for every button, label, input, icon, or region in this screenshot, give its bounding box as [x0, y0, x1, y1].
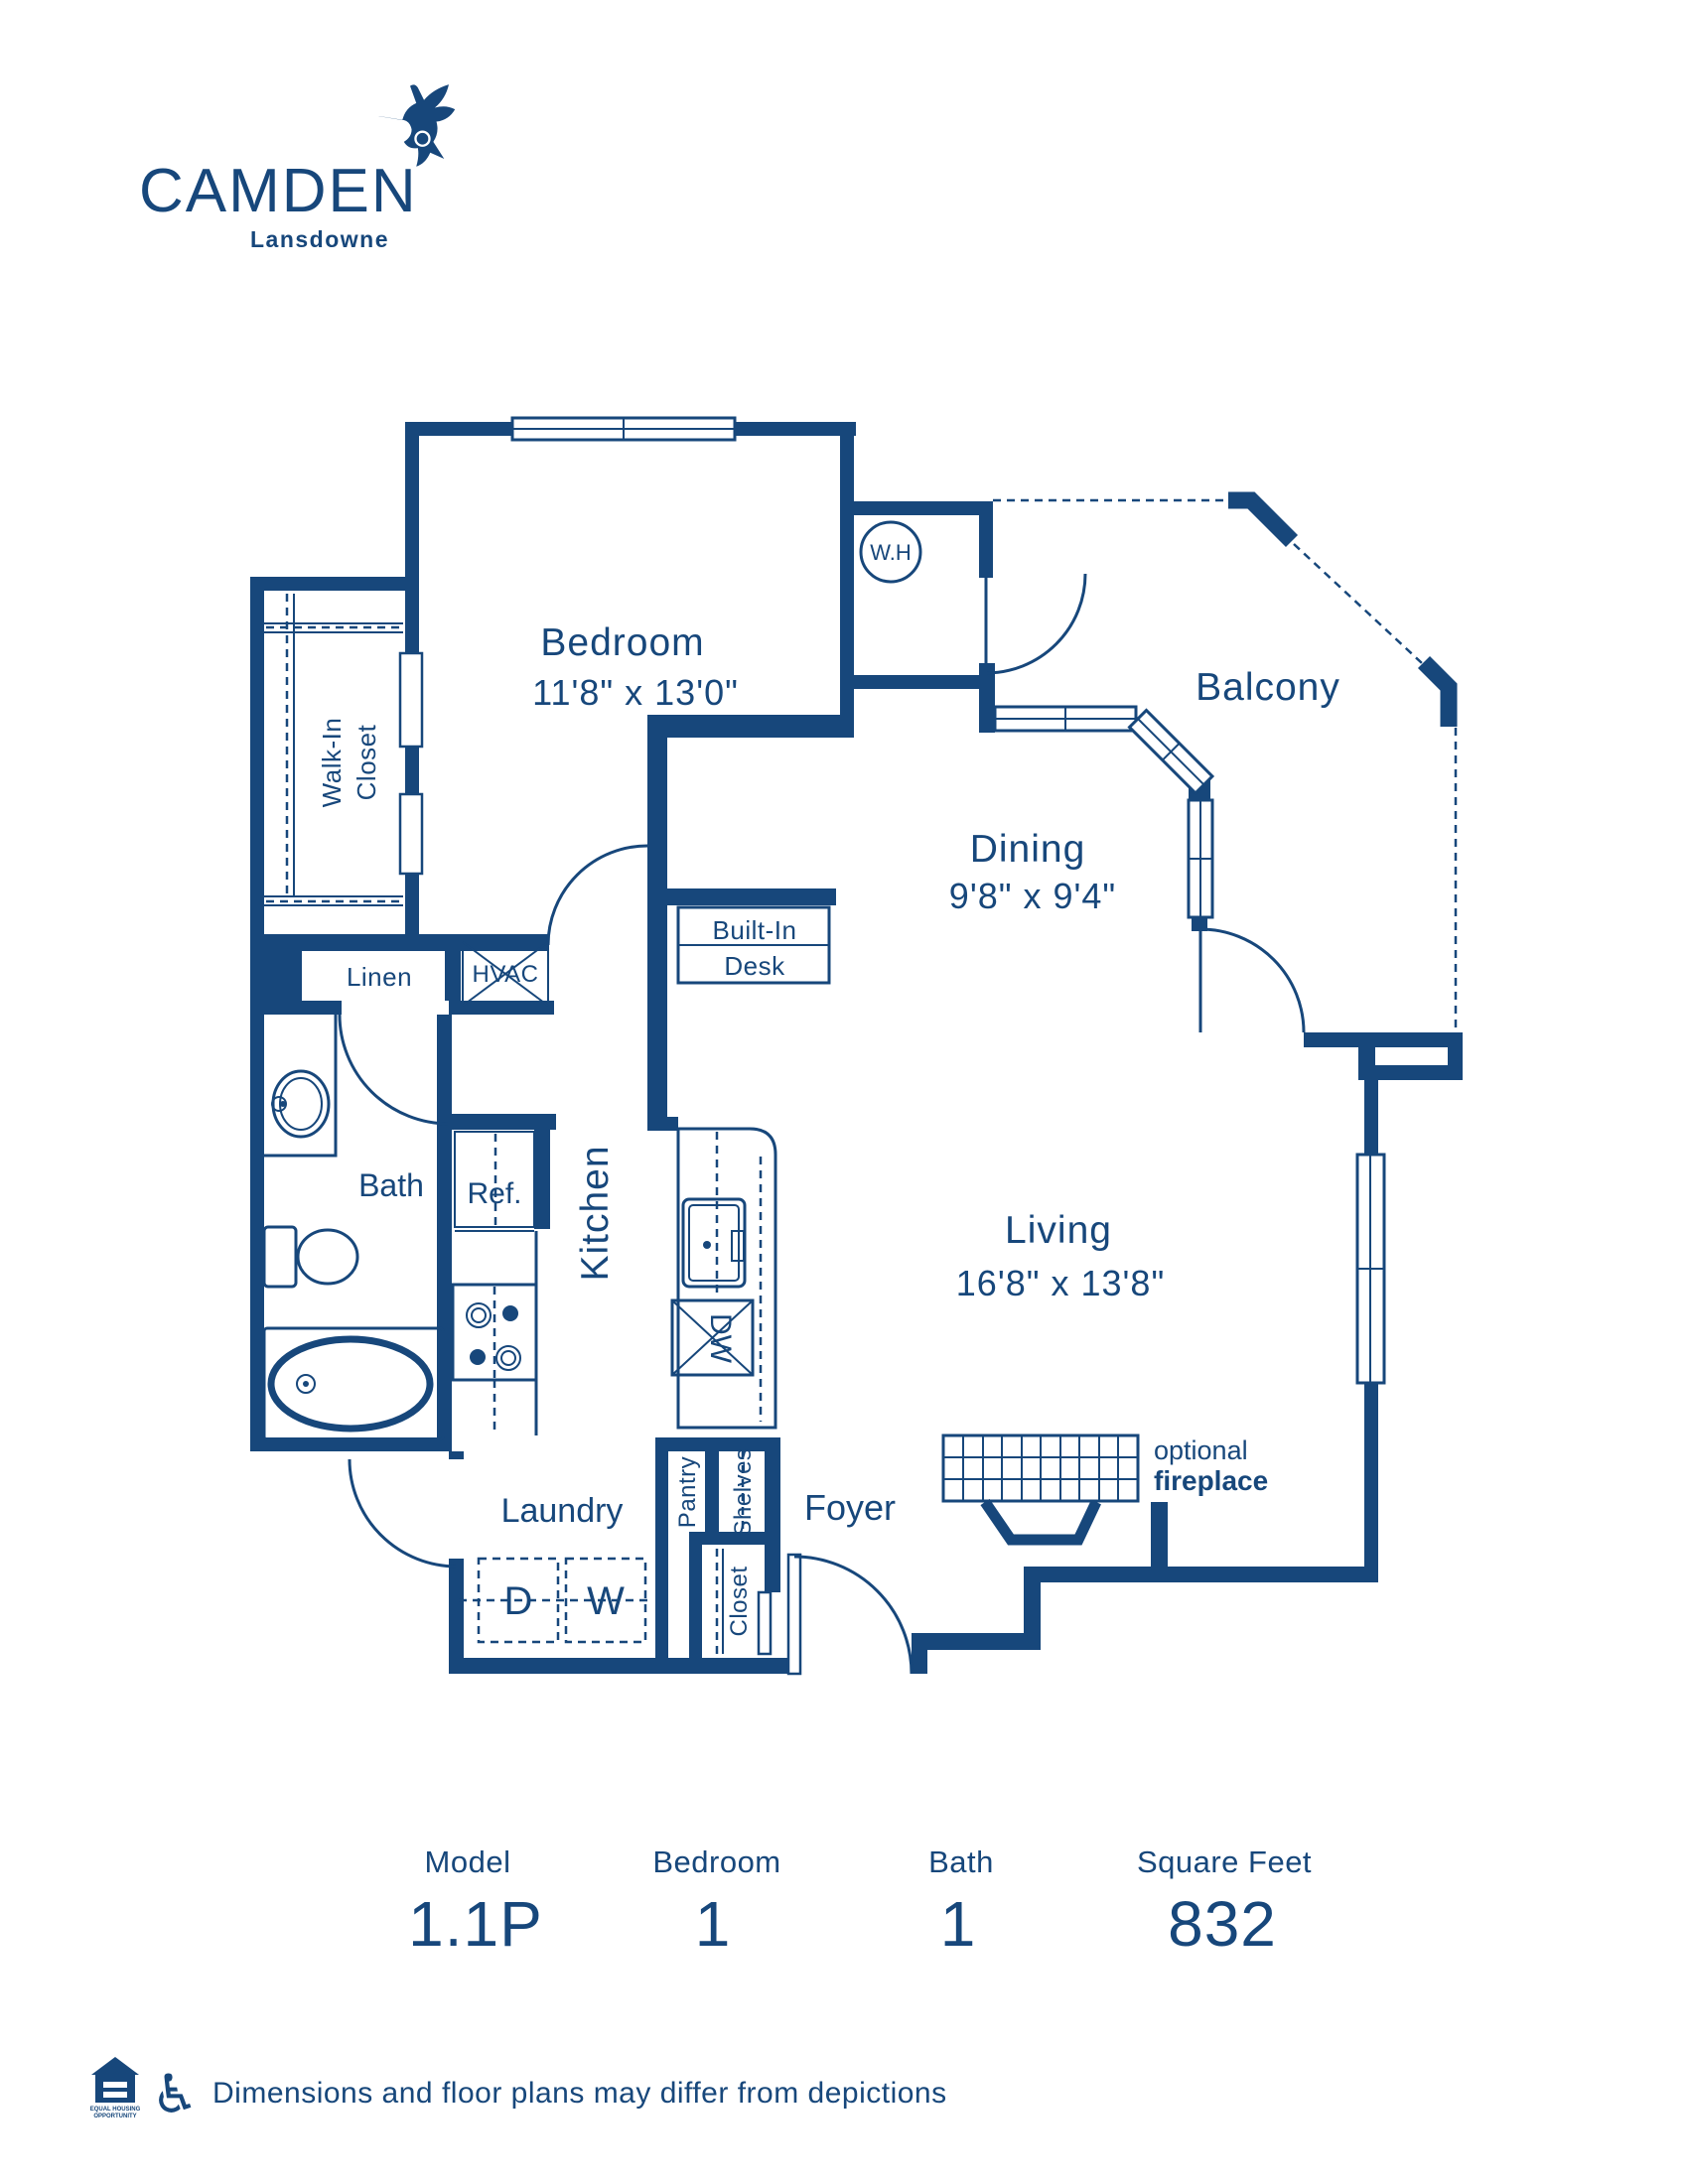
eho-caption-1: EQUAL HOUSING [90, 2107, 141, 2113]
summary-bath-value: 1 [940, 1888, 977, 1960]
built-in-desk-label-1: Built-In [713, 915, 797, 945]
summary-bedroom-value: 1 [695, 1888, 732, 1960]
feature-labels: Walk-In Closet Linen HVAC Built-In Desk … [317, 540, 1268, 1637]
kitchen-label: Kitchen [574, 1145, 617, 1281]
hummingbird-icon [374, 84, 455, 167]
dishwasher-label: DW [704, 1313, 737, 1364]
kitchen-sink [683, 1199, 745, 1287]
toilet [264, 1227, 357, 1287]
brand-logo: CAMDEN Lansdowne [139, 84, 455, 252]
accessibility-icon: ♿ [151, 2063, 199, 2125]
built-in-desk-label-2: Desk [724, 951, 785, 981]
living-label: Living [1005, 1209, 1112, 1252]
summary-model-label: Model [425, 1844, 511, 1879]
living-window [1357, 1155, 1384, 1383]
laundry-door-arc [350, 1459, 457, 1567]
summary-sqft-value: 832 [1168, 1888, 1277, 1960]
summary-bath-label: Bath [928, 1844, 994, 1879]
bedroom-door-arc [548, 846, 647, 945]
shelves-label: Shelves [730, 1448, 757, 1537]
walls [250, 422, 1463, 1674]
brand-name: CAMDEN [139, 157, 418, 225]
hvac-label: HVAC [473, 961, 539, 988]
summary-table: Model 1.1P Bedroom 1 Bath 1 Square Feet … [408, 1844, 1312, 1960]
foyer-label: Foyer [804, 1487, 896, 1528]
walkin-closet-label-2: Closet [352, 724, 381, 800]
brand-location: Lansdowne [250, 226, 389, 252]
living-dims: 16'8" x 13'8" [956, 1263, 1165, 1303]
fireplace [943, 1435, 1138, 1540]
dining-window-horizontal [995, 707, 1136, 731]
floorplan-page: CAMDEN Lansdowne [0, 0, 1688, 2184]
walkin-closet-door-leaf [400, 653, 422, 747]
washer-label: W [587, 1579, 625, 1623]
dining-dims: 9'8" x 9'4" [949, 876, 1116, 916]
summary-sqft-label: Square Feet [1137, 1844, 1312, 1879]
bathtub [264, 1328, 443, 1439]
bedroom-dims: 11'8" x 13'0" [532, 672, 739, 713]
bedroom-window [512, 418, 735, 440]
wh-closet-door [986, 574, 1085, 673]
laundry-label: Laundry [501, 1492, 624, 1530]
foyer-closet-door-leaf [759, 1592, 771, 1654]
equal-housing-icon: EQUAL HOUSING OPPORTUNITY [90, 2057, 141, 2119]
foyer-closet-label: Closet [726, 1566, 753, 1636]
fireplace-label-1: optional [1154, 1435, 1248, 1465]
summary-model-value: 1.1P [408, 1888, 543, 1960]
footer: EQUAL HOUSING OPPORTUNITY ♿ Dimensions a… [90, 2057, 947, 2125]
dining-window-diagonal [1130, 711, 1212, 793]
linen-label: Linen [347, 962, 412, 992]
bath-sink [272, 1071, 329, 1137]
pantry-label: Pantry [674, 1456, 701, 1528]
bath-door-arc [340, 1015, 449, 1124]
stove [453, 1285, 536, 1380]
footer-disclaimer: Dimensions and floor plans may differ fr… [212, 2077, 947, 2110]
summary-bedroom-label: Bedroom [652, 1844, 780, 1879]
kitchen-counter [672, 1129, 775, 1428]
fireplace-label-2: fireplace [1154, 1465, 1268, 1496]
dining-window-vertical [1189, 800, 1212, 917]
bedroom-label: Bedroom [540, 621, 704, 664]
balcony-label: Balcony [1196, 666, 1340, 709]
floorplan-canvas: CAMDEN Lansdowne [0, 0, 1688, 2184]
walkin-closet-door-leaf-2 [400, 794, 422, 874]
dryer-label: D [504, 1579, 533, 1623]
entry-door [788, 1555, 912, 1674]
walkin-closet-label-1: Walk-In [317, 718, 347, 808]
balcony-boundary [993, 500, 1456, 1030]
bath-fixtures [264, 1015, 443, 1439]
refrigerator-label: Ref. [467, 1177, 521, 1210]
dining-label: Dining [970, 828, 1086, 871]
water-heater-label: W.H [870, 540, 912, 565]
balcony-door [1200, 929, 1304, 1032]
eho-caption-2: OPPORTUNITY [93, 2114, 136, 2119]
bath-label: Bath [358, 1167, 424, 1203]
